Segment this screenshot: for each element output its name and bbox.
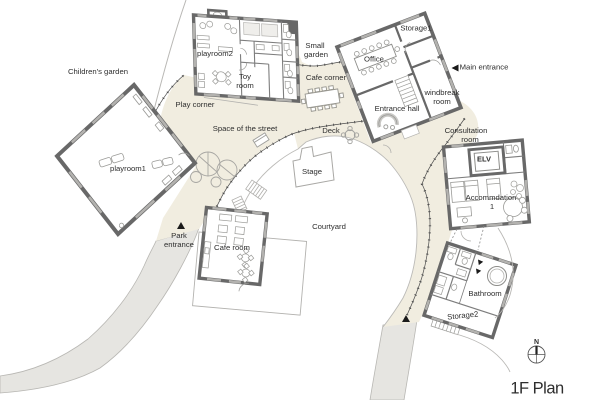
svg-text:playroom2: playroom2 <box>197 49 233 58</box>
svg-text:Space of the street: Space of the street <box>213 124 278 133</box>
svg-text:playroom1: playroom1 <box>110 164 146 173</box>
svg-text:ELV: ELV <box>477 155 491 164</box>
svg-text:Toy: Toy <box>239 72 251 81</box>
svg-text:room: room <box>236 81 254 90</box>
svg-text:1: 1 <box>490 202 494 211</box>
svg-text:room: room <box>433 97 451 106</box>
svg-text:Entrance hall: Entrance hall <box>375 104 420 113</box>
svg-text:Accommdation: Accommdation <box>466 193 517 202</box>
svg-text:entrance: entrance <box>164 240 194 249</box>
svg-text:Storage1: Storage1 <box>400 24 431 33</box>
svg-text:Bathroom: Bathroom <box>468 289 501 298</box>
svg-text:N: N <box>534 339 539 346</box>
svg-text:room: room <box>461 135 479 144</box>
svg-text:1F Plan: 1F Plan <box>510 380 564 398</box>
svg-text:Deck: Deck <box>322 126 340 135</box>
svg-text:Children's garden: Children's garden <box>68 67 128 76</box>
svg-text:Cafe room: Cafe room <box>214 243 250 252</box>
svg-text:Main entrance: Main entrance <box>460 63 509 72</box>
svg-text:Courtyard: Courtyard <box>312 222 346 231</box>
svg-text:Cafe corner: Cafe corner <box>306 73 347 82</box>
svg-text:Play corner: Play corner <box>176 100 215 109</box>
svg-text:Park: Park <box>171 231 187 240</box>
svg-text:Consultation: Consultation <box>445 126 488 135</box>
svg-text:Small: Small <box>305 41 325 50</box>
svg-text:Stage: Stage <box>302 167 322 176</box>
svg-text:garden: garden <box>304 50 328 59</box>
svg-text:windbreak: windbreak <box>423 88 459 97</box>
svg-text:Office: Office <box>364 55 384 64</box>
